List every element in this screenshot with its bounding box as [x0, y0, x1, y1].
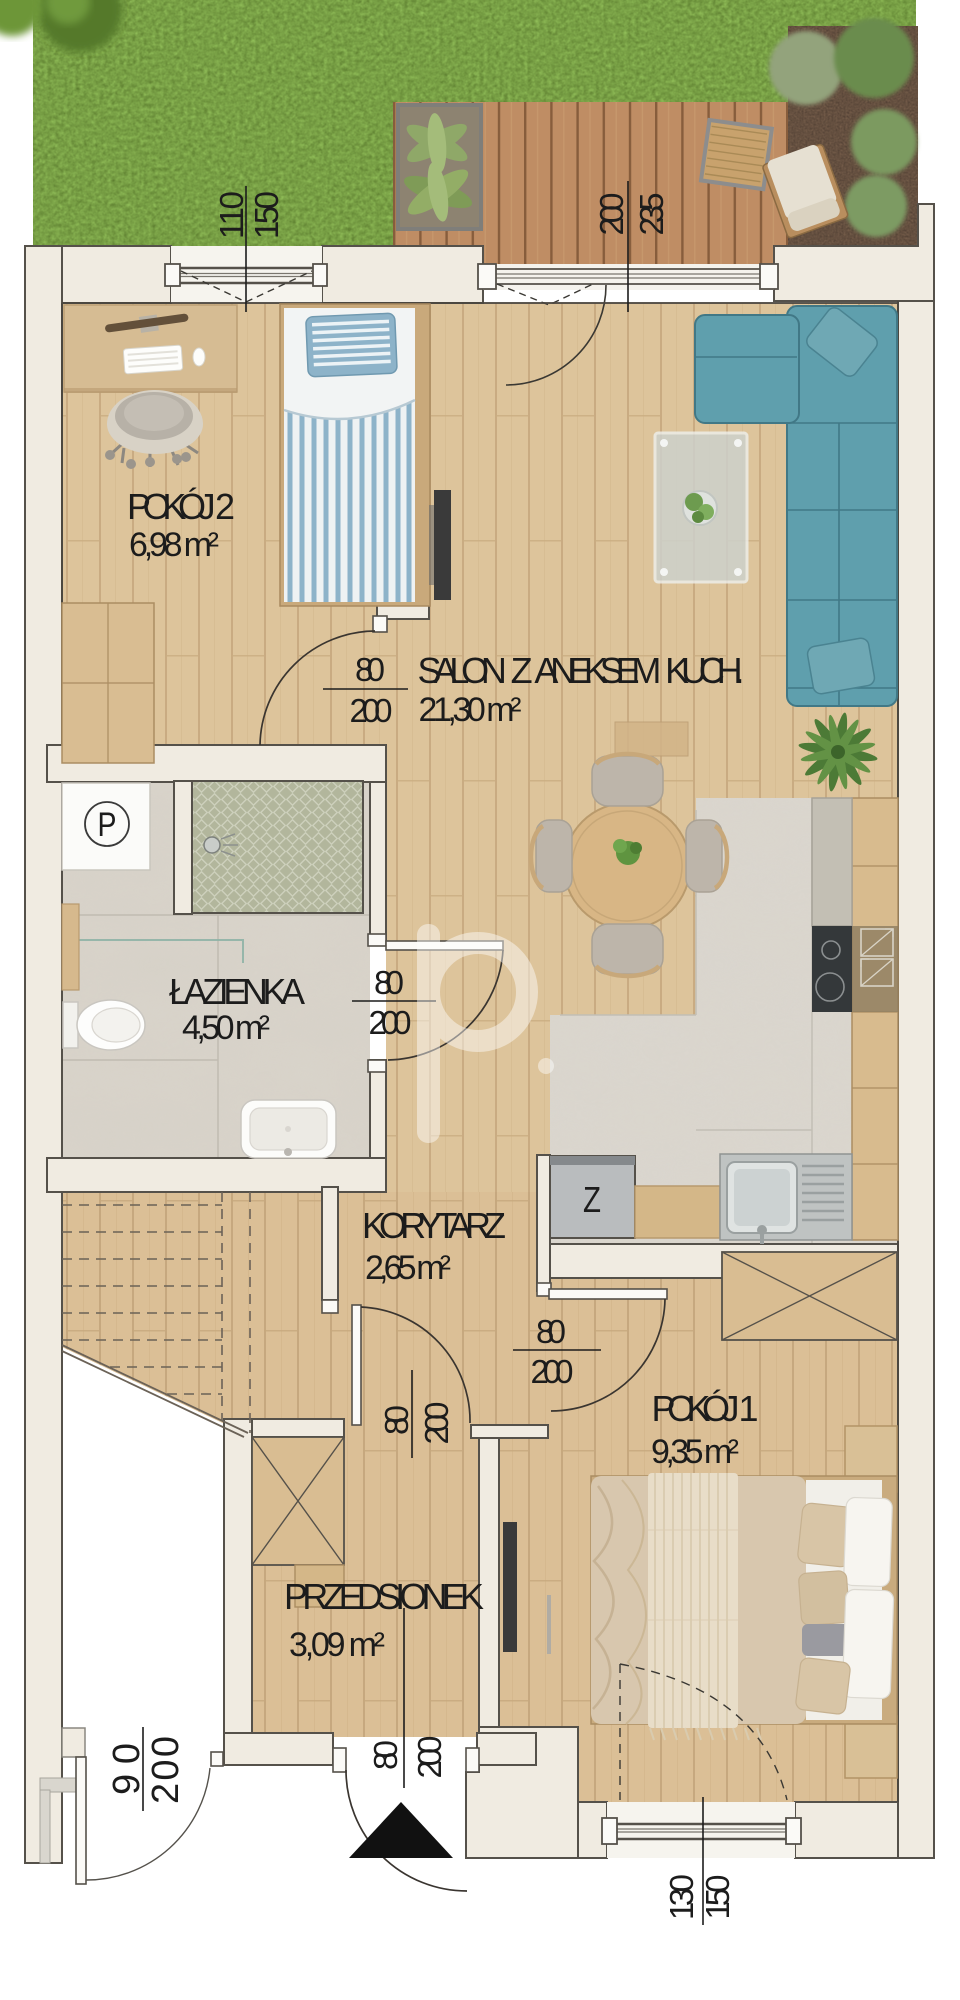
svg-text:3,09 m²: 3,09 m²	[289, 1626, 385, 1664]
svg-text:SALON Z ANEKSEM KUCH.: SALON Z ANEKSEM KUCH.	[418, 650, 745, 691]
svg-text:130: 130	[663, 1874, 700, 1920]
svg-text:150: 150	[248, 191, 285, 239]
svg-text:PRZEDSIONEK: PRZEDSIONEK	[284, 1576, 484, 1617]
svg-text:235: 235	[633, 193, 670, 236]
svg-text:80: 80	[374, 964, 404, 1001]
svg-text:6,98 m²: 6,98 m²	[129, 526, 219, 564]
svg-text:200: 200	[418, 1402, 455, 1445]
svg-text:80: 80	[378, 1405, 415, 1435]
svg-text:150: 150	[699, 1875, 736, 1920]
svg-text:200: 200	[369, 1004, 412, 1041]
svg-text:110: 110	[213, 191, 250, 239]
svg-text:P: P	[98, 806, 117, 844]
svg-text:2,65 m²: 2,65 m²	[365, 1249, 451, 1287]
svg-text:200: 200	[145, 1736, 187, 1804]
svg-text:200: 200	[411, 1736, 448, 1779]
svg-text:80: 80	[367, 1740, 404, 1770]
svg-text:80: 80	[355, 651, 385, 688]
svg-text:KORYTARZ: KORYTARZ	[362, 1205, 506, 1246]
svg-text:POKÓJ 2: POKÓJ 2	[127, 486, 235, 527]
svg-text:200: 200	[531, 1353, 574, 1390]
svg-text:Z: Z	[583, 1179, 601, 1220]
svg-text:200: 200	[593, 193, 630, 236]
svg-text:200: 200	[350, 692, 393, 729]
svg-text:80: 80	[536, 1313, 566, 1350]
svg-text:ŁAZIENKA: ŁAZIENKA	[169, 971, 305, 1012]
svg-text:9,35 m²: 9,35 m²	[651, 1433, 739, 1471]
svg-text:POKÓJ 1: POKÓJ 1	[652, 1388, 759, 1429]
svg-text:21,30 m²: 21,30 m²	[419, 691, 522, 729]
svg-text:4,50 m²: 4,50 m²	[182, 1009, 270, 1047]
